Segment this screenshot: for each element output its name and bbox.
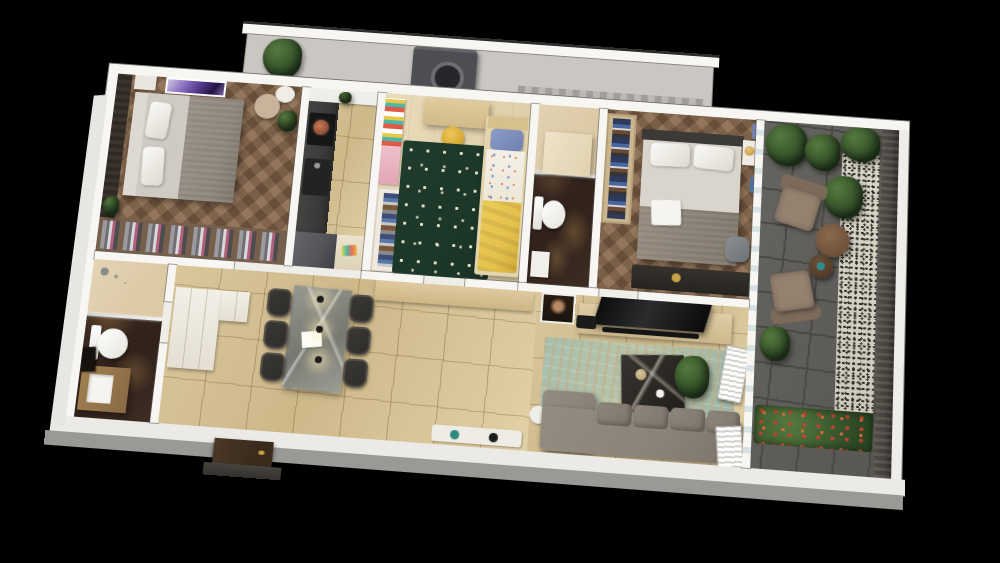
kitchen-counter-light (334, 234, 365, 270)
kids-yellow-blanket (477, 200, 521, 273)
bath1-toilet (541, 200, 567, 230)
service-plant (261, 37, 304, 79)
bedroom2-clothes (607, 118, 631, 219)
coffee-cup (656, 389, 664, 397)
balcony-plant-5 (759, 326, 791, 362)
service-balcony-back-wall (242, 21, 719, 67)
floor-plan (58, 19, 912, 522)
balcony (750, 121, 899, 479)
balcony-armchair-1 (769, 173, 829, 236)
master-pillow-2 (141, 147, 165, 186)
bedroom2-wardrobe (601, 113, 637, 225)
dining-chair-3 (259, 352, 286, 382)
wall-shelf (431, 424, 522, 447)
master-blanket (178, 96, 245, 203)
bath1-vanity (542, 131, 592, 177)
master-bedroom (95, 74, 302, 265)
table-papers (301, 330, 322, 348)
dining-chair-4 (348, 294, 375, 324)
dining-chair-1 (266, 288, 293, 318)
hallway-cabinet-1 (167, 287, 222, 371)
balcony-plant-1 (765, 123, 808, 168)
bathroom-1 (527, 104, 600, 288)
bedroom2-lounge-chair (725, 236, 750, 263)
kids-blue-pillow (490, 128, 524, 151)
coffee-table-tray (635, 369, 646, 380)
kids-duvet (483, 149, 526, 206)
master-plant-small (102, 196, 120, 217)
sofa-cushion-1 (596, 402, 632, 427)
bath2-basin (86, 374, 114, 404)
bedroom2-throw (651, 200, 681, 225)
master-nightstand (134, 75, 157, 91)
bedroom2-pillow-2 (693, 144, 735, 172)
living-room (527, 292, 749, 467)
refrigerator (292, 231, 337, 268)
flower-planter (753, 404, 873, 452)
hallway-dining (158, 265, 538, 451)
master-plant (276, 110, 298, 132)
master-bed (122, 92, 244, 203)
apartment-interior (74, 74, 909, 480)
black-plant-pot (488, 433, 498, 443)
kids-bookshelf (381, 98, 405, 147)
kids-pink-unit (378, 145, 401, 185)
bath2-vanity (77, 365, 131, 413)
kids-bedroom (370, 93, 532, 282)
dining-chair-2 (262, 320, 289, 350)
dining-chair-6 (342, 358, 369, 388)
cooking-pan (312, 119, 329, 135)
balcony-plant-4 (822, 175, 863, 221)
door-handle (258, 450, 265, 455)
sofa-cushion-2 (633, 404, 669, 429)
balcony-plant-2 (804, 133, 841, 172)
dining-chair-5 (345, 326, 372, 356)
kitchen-sink (301, 158, 331, 197)
sofa-cushion-3 (670, 407, 706, 432)
portrait-art (540, 292, 576, 324)
kids-desk (423, 98, 490, 129)
kitchen-art-paper (341, 245, 356, 257)
shutter-panel-2 (715, 426, 744, 468)
vanity-table (275, 85, 296, 103)
teal-pot (817, 262, 825, 270)
teal-plant-pot (450, 430, 460, 440)
bath2-mirror (81, 347, 96, 372)
master-pillow-1 (144, 101, 172, 140)
radio (576, 315, 597, 330)
armchair-2-seat (769, 270, 815, 313)
hallway-cabinet-2 (219, 290, 250, 322)
bath1-shelf (530, 251, 550, 278)
bath2-shower-zone (87, 259, 168, 318)
apartment-render-stage (0, 0, 1000, 563)
bedroom2-pillow-1 (650, 143, 690, 168)
stove (306, 112, 336, 146)
kitchen-faucet (314, 163, 320, 169)
deer-figurine (671, 273, 680, 283)
apartment-shell (62, 64, 909, 490)
bedroom-2 (597, 109, 757, 300)
